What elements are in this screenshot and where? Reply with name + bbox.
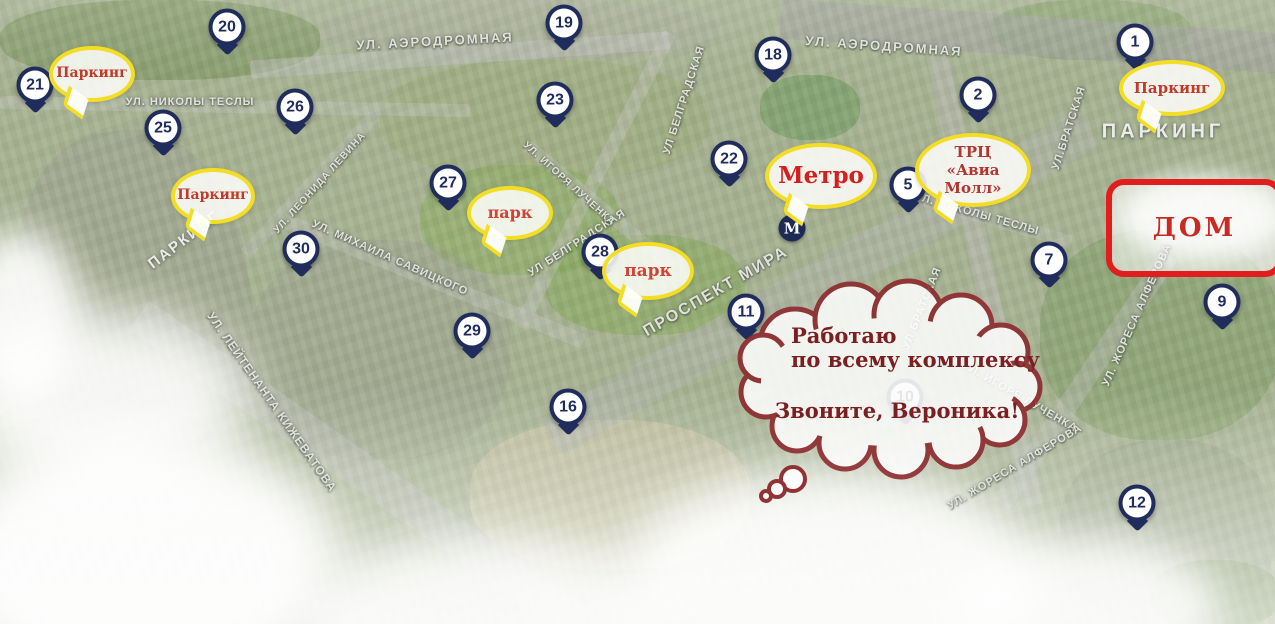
map-terrain-patch <box>0 116 272 475</box>
thought-bubble-text: Работаю по всему комплексу Звоните, Веро… <box>791 324 1040 423</box>
dom-highlight-box: ДОМ <box>1106 179 1275 277</box>
map-pin-29[interactable]: 29 <box>454 313 491 350</box>
map-pin-2[interactable]: 2 <box>960 77 997 114</box>
pin-number: 21 <box>21 71 50 100</box>
pin-number: 25 <box>149 114 178 143</box>
map-pin-12[interactable]: 12 <box>1119 485 1156 522</box>
map-pin-21[interactable]: 21 <box>17 67 54 104</box>
bubble-text: «Авиа Молл» <box>919 161 1027 198</box>
thought-line: Работаю <box>791 324 1040 348</box>
label-bubble-park-2: парк <box>602 242 694 300</box>
map-pin-30[interactable]: 30 <box>283 231 320 268</box>
pin-number: 29 <box>458 317 487 346</box>
label-bubble-parking-ne: Паркинг <box>1119 60 1225 116</box>
pin-number: 16 <box>554 393 583 422</box>
pin-number: 20 <box>213 13 242 42</box>
pin-number: 19 <box>550 9 579 38</box>
pin-number: 30 <box>287 235 316 264</box>
map-pin-7[interactable]: 7 <box>1031 242 1068 279</box>
bubble-text: парк <box>488 203 533 223</box>
pin-number: 18 <box>759 41 788 70</box>
bubble-text: Паркинг <box>177 187 248 204</box>
map-terrain-patch <box>470 420 750 570</box>
label-bubble-parking-nw: Паркинг <box>49 46 135 102</box>
pin-number: 27 <box>434 169 463 198</box>
map-terrain-patch <box>760 75 860 140</box>
pin-number: 22 <box>715 145 744 174</box>
pin-number: 9 <box>1208 288 1237 317</box>
cloud <box>0 430 340 624</box>
map-pin-1[interactable]: 1 <box>1117 24 1154 61</box>
map-pin-20[interactable]: 20 <box>209 9 246 46</box>
bubble-tail <box>62 85 88 119</box>
pin-number: 12 <box>1123 489 1152 518</box>
dom-label: ДОМ <box>1153 213 1237 243</box>
map-pin-23[interactable]: 23 <box>537 82 574 119</box>
bubble-text: ТРЦ <box>955 143 992 161</box>
map-pin-18[interactable]: 18 <box>755 37 792 74</box>
thought-bubble: Работаю по всему комплексу Звоните, Веро… <box>743 290 1035 505</box>
pin-number: 2 <box>964 81 993 110</box>
pin-number: 7 <box>1035 246 1064 275</box>
ground-label: ПАРКИНГ <box>1102 121 1225 144</box>
bubble-text: Паркинг <box>1134 79 1211 97</box>
label-bubble-metro: Метро <box>765 143 877 209</box>
bubble-text: Метро <box>778 162 864 190</box>
bubble-text: Паркинг <box>56 65 127 82</box>
pin-number: 26 <box>281 93 310 122</box>
map-pin-27[interactable]: 27 <box>430 165 467 202</box>
map-pin-22[interactable]: 22 <box>711 141 748 178</box>
thought-line: Звоните, Вероника! <box>775 399 1040 423</box>
map-pin-9[interactable]: 9 <box>1204 284 1241 321</box>
label-bubble-trc-avia-mall: ТРЦ«Авиа Молл» <box>915 133 1031 207</box>
label-bubble-park-1: парк <box>467 186 553 240</box>
map-pin-16[interactable]: 16 <box>550 389 587 426</box>
map-pin-19[interactable]: 19 <box>546 5 583 42</box>
map-terrain-patch <box>1150 560 1275 624</box>
pin-number: 1 <box>1121 28 1150 57</box>
map-pin-25[interactable]: 25 <box>145 110 182 147</box>
aerial-complex-map: М ДОМ <box>0 0 1275 624</box>
thought-line: по всему комплексу <box>791 348 1040 372</box>
bubble-text: парк <box>624 261 672 282</box>
pin-number: 23 <box>541 86 570 115</box>
street-label: УЛ. НИКОЛЫ ТЕСЛЫ <box>126 96 255 108</box>
map-pin-26[interactable]: 26 <box>277 89 314 126</box>
label-bubble-parking-w: Паркинг <box>171 168 255 224</box>
